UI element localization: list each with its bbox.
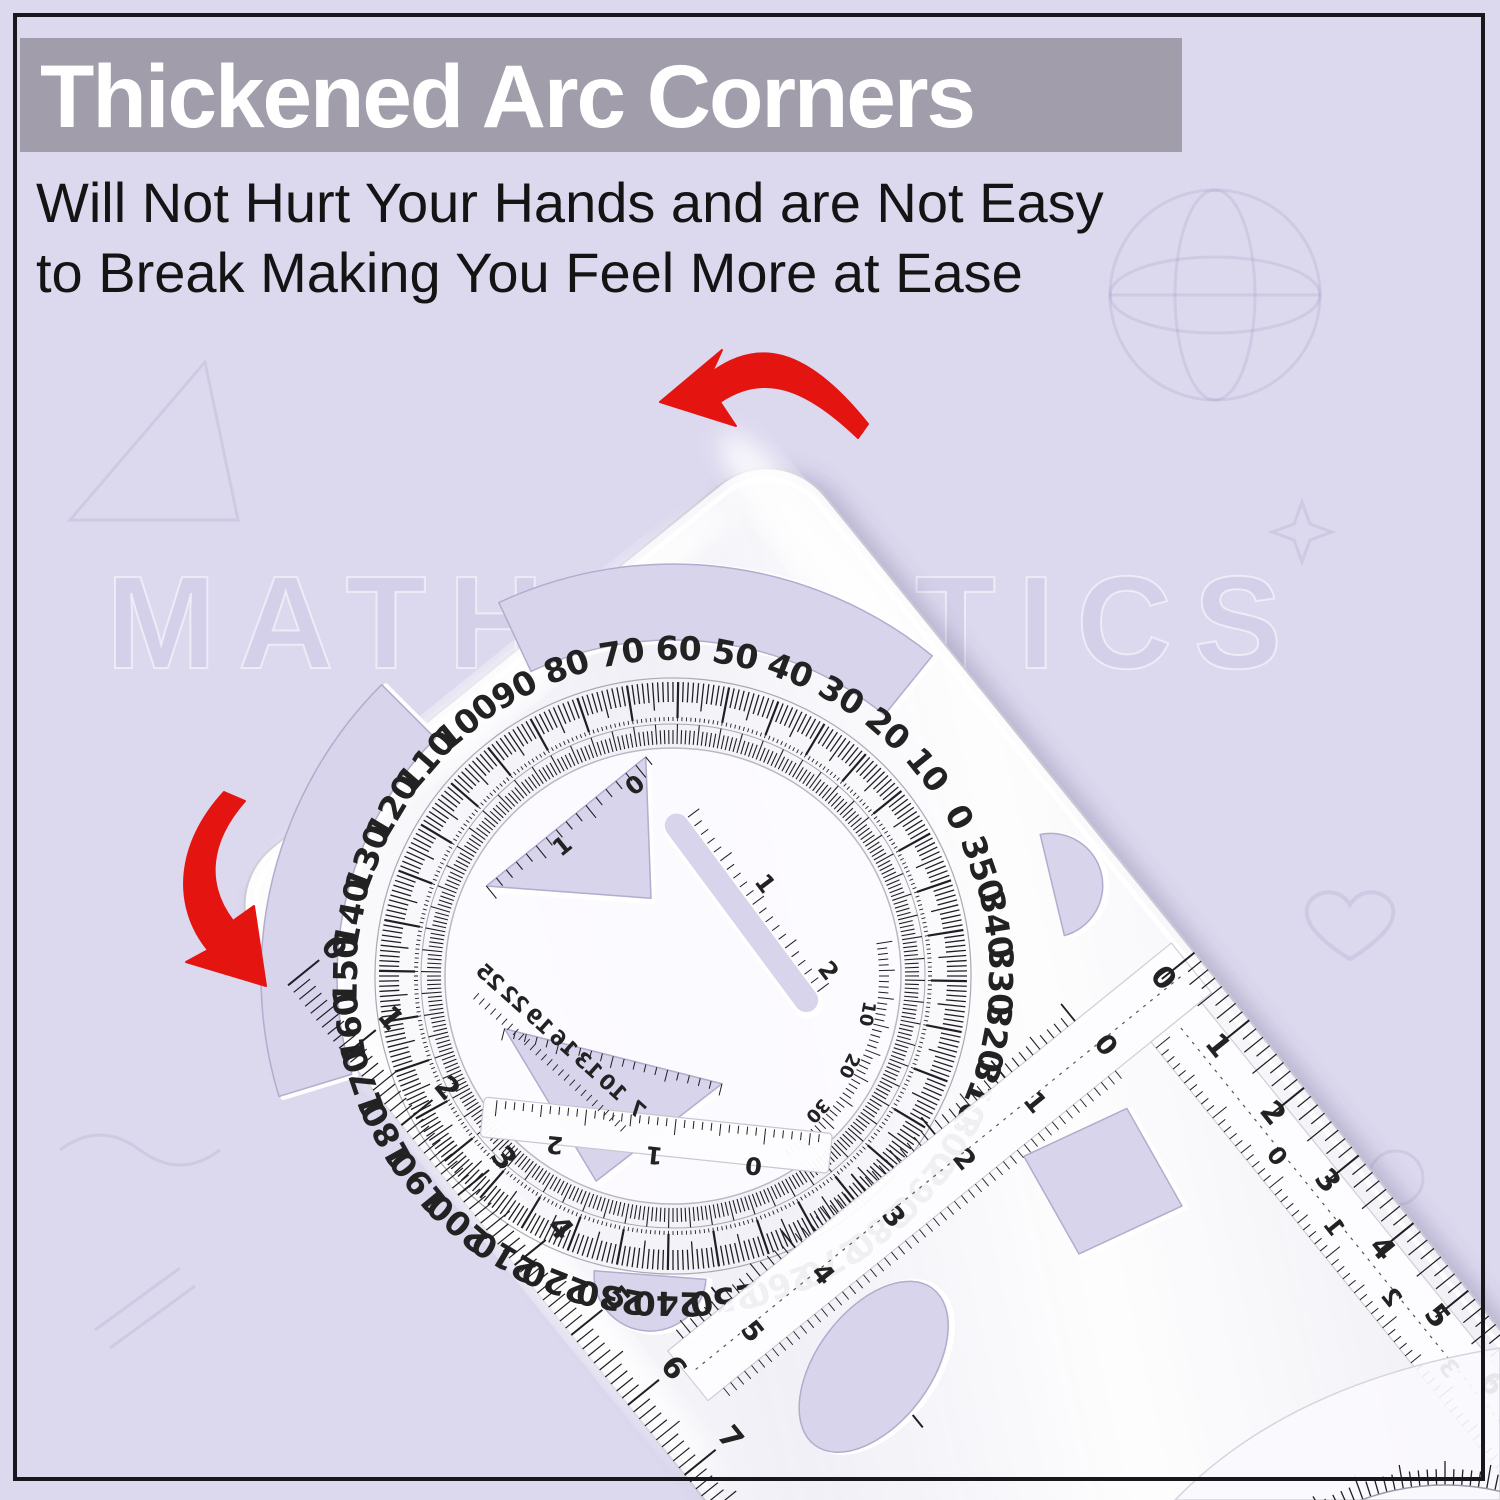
scale-number: 60: [655, 629, 702, 669]
scale-number: 1: [644, 1140, 664, 1170]
product-image: MATHEMATICS 0102030405060708090100110120…: [0, 0, 1500, 1500]
scene-svg: MATHEMATICS 0102030405060708090100110120…: [0, 0, 1500, 1500]
headline-banner: Thickened Arc Corners: [20, 38, 1182, 152]
scale-number: 2: [545, 1130, 565, 1160]
headline-text: Thickened Arc Corners: [40, 46, 974, 146]
subheadline-line2: to Break Making You Feel More at Ease: [36, 241, 1023, 304]
scale-number: 0: [744, 1151, 764, 1181]
scale-number: 70: [596, 630, 647, 676]
subheadline-line1: Will Not Hurt Your Hands and are Not Eas…: [36, 171, 1104, 234]
